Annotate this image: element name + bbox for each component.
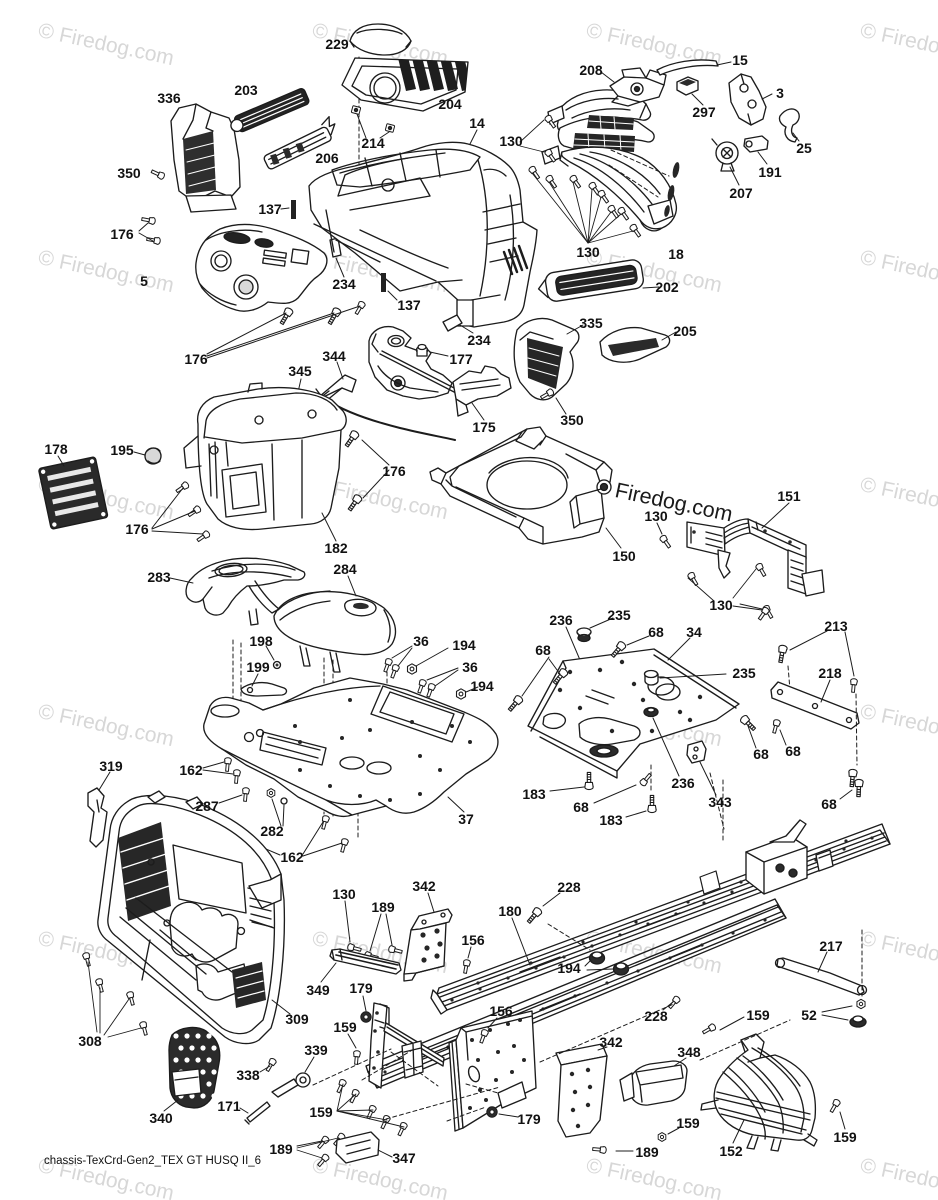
svg-text:© Firedog.com: © Firedog.com: [858, 246, 938, 297]
svg-text:217: 217: [819, 938, 843, 954]
svg-text:162: 162: [280, 849, 304, 865]
svg-text:183: 183: [599, 812, 623, 828]
svg-text:213: 213: [824, 618, 848, 634]
svg-text:282: 282: [260, 823, 284, 839]
svg-text:183: 183: [522, 786, 546, 802]
svg-text:© Firedog.com: © Firedog.com: [36, 246, 176, 297]
svg-text:198: 198: [249, 633, 273, 649]
svg-text:235: 235: [732, 665, 756, 681]
svg-text:228: 228: [557, 879, 581, 895]
svg-text:© Firedog.com: © Firedog.com: [858, 473, 938, 524]
svg-text:© Firedog.com: © Firedog.com: [858, 1154, 938, 1200]
svg-text:130: 130: [332, 886, 356, 902]
svg-text:176: 176: [110, 226, 134, 242]
svg-text:25: 25: [796, 140, 812, 156]
svg-text:159: 159: [309, 1104, 333, 1120]
svg-text:343: 343: [708, 794, 732, 810]
svg-text:236: 236: [549, 612, 573, 628]
svg-text:© Firedog.com: © Firedog.com: [36, 19, 176, 70]
svg-text:179: 179: [517, 1111, 541, 1127]
svg-text:228: 228: [644, 1008, 668, 1024]
svg-text:194: 194: [452, 637, 476, 653]
svg-text:338: 338: [236, 1067, 260, 1083]
svg-text:18: 18: [668, 246, 684, 262]
svg-text:15: 15: [732, 52, 748, 68]
svg-text:339: 339: [304, 1042, 328, 1058]
svg-text:68: 68: [821, 796, 837, 812]
svg-text:162: 162: [179, 762, 203, 778]
svg-text:chassis-TexCrd-Gen2_TEX GT HUS: chassis-TexCrd-Gen2_TEX GT HUSQ II_6: [44, 1155, 261, 1167]
svg-text:151: 151: [777, 488, 801, 504]
svg-text:3: 3: [776, 85, 784, 101]
svg-text:175: 175: [472, 419, 496, 435]
svg-text:© Firedog.com: © Firedog.com: [858, 927, 938, 978]
svg-text:© Firedog.com: © Firedog.com: [310, 1154, 450, 1200]
svg-text:© Firedog.com: © Firedog.com: [858, 700, 938, 751]
svg-text:189: 189: [269, 1141, 293, 1157]
svg-text:234: 234: [332, 276, 356, 292]
svg-text:309: 309: [285, 1011, 309, 1027]
svg-text:205: 205: [673, 323, 697, 339]
svg-text:14: 14: [469, 115, 485, 131]
svg-text:345: 345: [288, 363, 312, 379]
svg-text:159: 159: [333, 1019, 357, 1035]
svg-text:179: 179: [349, 980, 373, 996]
svg-text:236: 236: [671, 775, 695, 791]
svg-text:130: 130: [644, 508, 668, 524]
svg-text:130: 130: [576, 244, 600, 260]
svg-text:204: 204: [438, 96, 462, 112]
svg-text:336: 336: [157, 90, 181, 106]
svg-text:335: 335: [579, 315, 603, 331]
svg-text:36: 36: [413, 633, 429, 649]
svg-text:176: 176: [184, 351, 208, 367]
svg-text:284: 284: [333, 561, 357, 577]
svg-text:177: 177: [449, 351, 473, 367]
svg-text:350: 350: [560, 412, 584, 428]
svg-text:344: 344: [322, 348, 346, 364]
svg-text:214: 214: [361, 135, 385, 151]
svg-text:36: 36: [462, 659, 478, 675]
svg-text:156: 156: [489, 1003, 513, 1019]
svg-text:180: 180: [498, 903, 522, 919]
svg-text:178: 178: [44, 441, 68, 457]
svg-text:137: 137: [397, 297, 421, 313]
svg-text:202: 202: [655, 279, 679, 295]
svg-text:© Firedog.com: © Firedog.com: [584, 1154, 724, 1200]
svg-text:159: 159: [746, 1007, 770, 1023]
svg-text:171: 171: [217, 1098, 241, 1114]
svg-text:229: 229: [325, 36, 349, 52]
svg-text:206: 206: [315, 150, 339, 166]
svg-text:159: 159: [676, 1115, 700, 1131]
svg-text:191: 191: [758, 164, 782, 180]
svg-text:34: 34: [686, 624, 702, 640]
svg-text:194: 194: [557, 960, 581, 976]
svg-text:342: 342: [599, 1034, 623, 1050]
svg-text:68: 68: [573, 799, 589, 815]
svg-text:189: 189: [635, 1144, 659, 1160]
svg-text:350: 350: [117, 165, 141, 181]
svg-text:199: 199: [246, 659, 270, 675]
svg-text:194: 194: [470, 678, 494, 694]
svg-text:235: 235: [607, 607, 631, 623]
svg-text:340: 340: [149, 1110, 173, 1126]
svg-text:342: 342: [412, 878, 436, 894]
svg-text:182: 182: [324, 540, 348, 556]
svg-text:68: 68: [785, 743, 801, 759]
svg-text:195: 195: [110, 442, 134, 458]
svg-text:© Firedog.com: © Firedog.com: [858, 19, 938, 70]
svg-text:234: 234: [467, 332, 491, 348]
svg-text:283: 283: [147, 569, 171, 585]
svg-text:203: 203: [234, 82, 258, 98]
svg-text:208: 208: [579, 62, 603, 78]
svg-text:130: 130: [499, 133, 523, 149]
svg-text:© Firedog.com: © Firedog.com: [36, 700, 176, 751]
svg-text:130: 130: [709, 597, 733, 613]
svg-text:218: 218: [818, 665, 842, 681]
svg-text:5: 5: [140, 273, 148, 289]
svg-text:150: 150: [612, 548, 636, 564]
svg-text:176: 176: [125, 521, 149, 537]
svg-text:52: 52: [801, 1007, 817, 1023]
svg-text:349: 349: [306, 982, 330, 998]
svg-text:308: 308: [78, 1033, 102, 1049]
svg-text:176: 176: [382, 463, 406, 479]
svg-text:297: 297: [692, 104, 716, 120]
svg-text:68: 68: [535, 642, 551, 658]
svg-text:347: 347: [392, 1150, 416, 1166]
svg-text:152: 152: [719, 1143, 743, 1159]
svg-text:156: 156: [461, 932, 485, 948]
svg-text:287: 287: [195, 798, 219, 814]
svg-text:159: 159: [833, 1129, 857, 1145]
svg-text:137: 137: [258, 201, 282, 217]
svg-text:37: 37: [458, 811, 474, 827]
svg-text:348: 348: [677, 1044, 701, 1060]
svg-text:189: 189: [371, 899, 395, 915]
svg-text:319: 319: [99, 758, 123, 774]
svg-text:207: 207: [729, 185, 753, 201]
svg-text:68: 68: [648, 624, 664, 640]
svg-text:68: 68: [753, 746, 769, 762]
